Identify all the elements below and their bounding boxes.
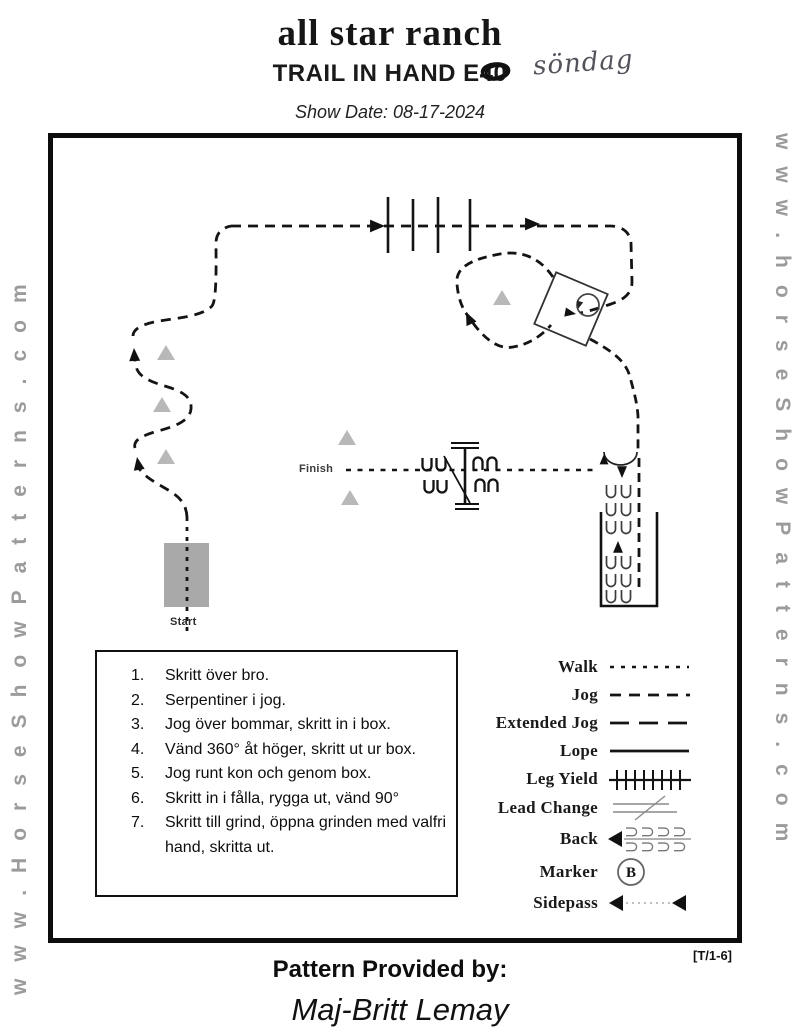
instructions-box: Skritt över bro. Serpentiner i jog. Jog …	[95, 650, 458, 897]
extended-jog-line-symbol	[607, 710, 693, 736]
instruction-item: Jog över bommar, skritt in i box.	[97, 713, 448, 738]
jog-line-symbol	[607, 682, 693, 708]
leg-yield-symbol	[607, 766, 693, 792]
serpentine-jog-path	[133, 226, 231, 517]
legend-row-sidepass: Sidepass	[472, 889, 718, 917]
back-symbol	[607, 824, 693, 854]
legend-label: Marker	[472, 862, 607, 882]
legend-row-leg-yield: Leg Yield	[472, 765, 718, 793]
legend-label: Lope	[472, 741, 607, 761]
instruction-item: Serpentiner i jog.	[97, 689, 448, 714]
top-jog-path	[231, 226, 632, 313]
legend-row-lead-change: Lead Change	[472, 793, 718, 822]
pen-obstacle	[601, 512, 657, 606]
legend-label: Back	[472, 829, 607, 849]
finish-label: Finish	[299, 463, 333, 475]
legend-row-walk: Walk	[472, 653, 718, 681]
legend-row-back: Back	[472, 822, 718, 855]
turn-90-arc	[604, 452, 637, 465]
legend-label: Jog	[472, 685, 607, 705]
legend-row-marker: Marker B	[472, 855, 718, 889]
legend-label: Extended Jog	[472, 713, 607, 733]
sidepass-symbol	[607, 890, 693, 916]
svg-text:B: B	[626, 865, 636, 881]
legend-row-lope: Lope	[472, 737, 718, 765]
start-label: Start	[170, 616, 197, 628]
marker-symbol: B	[607, 856, 693, 888]
walk-line-symbol	[607, 654, 693, 680]
instructions-list: Skritt över bro. Serpentiner i jog. Jog …	[97, 664, 448, 860]
legend-label: Leg Yield	[472, 769, 607, 789]
legend-row-extended-jog: Extended Jog	[472, 709, 718, 737]
legend-label: Walk	[472, 657, 607, 677]
instruction-item: Skritt in i fålla, rygga ut, vänd 90°	[97, 787, 448, 812]
legend-label: Lead Change	[472, 798, 607, 818]
legend-label: Sidepass	[472, 893, 607, 913]
instruction-item: Jog runt kon och genom box.	[97, 762, 448, 787]
gate-obstacle	[423, 443, 498, 509]
provider-name: Maj-Britt Lemay	[0, 992, 800, 1028]
lope-line-symbol	[607, 738, 693, 764]
instruction-item: Vänd 360° åt höger, skritt ut ur box.	[97, 738, 448, 763]
instruction-item: Skritt till grind, öppna grinden med val…	[97, 811, 448, 860]
provided-by-label: Pattern Provided by:	[0, 956, 780, 984]
legend: Walk Jog Extended Jog Lope Leg Yield Lea…	[472, 653, 718, 917]
pattern-sheet: all star ranch TRAIL IN HAND E40 söndag …	[0, 0, 800, 1033]
direction-arrows	[129, 218, 627, 553]
lead-change-symbol	[607, 794, 693, 822]
legend-row-jog: Jog	[472, 681, 718, 709]
instruction-item: Skritt över bro.	[97, 664, 448, 689]
